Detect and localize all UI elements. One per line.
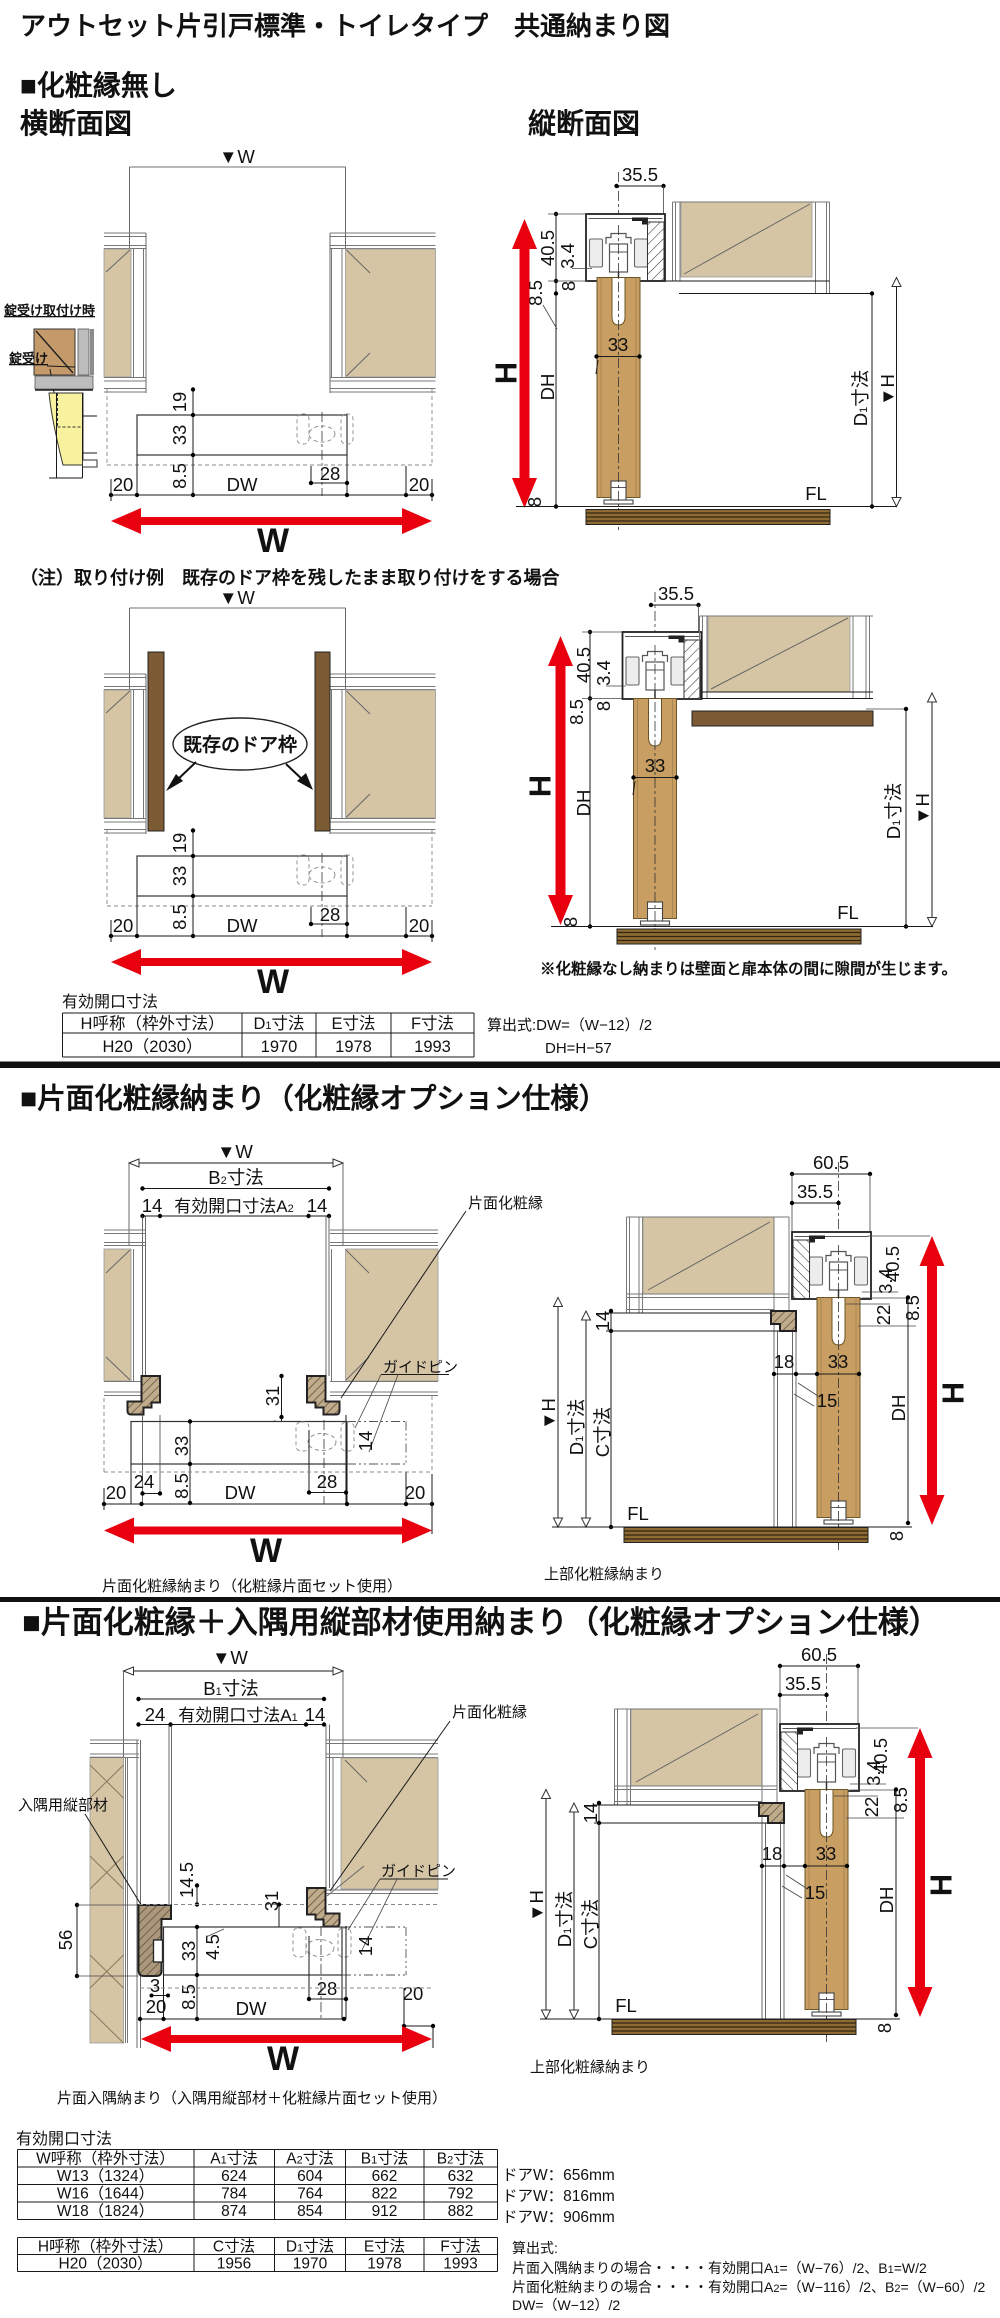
svg-text:662: 662 (372, 2168, 398, 2185)
svg-text:DH: DH (573, 790, 594, 817)
svg-text:33: 33 (608, 334, 629, 355)
svg-text:8: 8 (558, 281, 579, 291)
svg-text:縦断面図: 縦断面図 (528, 107, 640, 139)
svg-text:874: 874 (221, 2203, 247, 2220)
svg-text:▼W: ▼W (212, 1647, 248, 1668)
svg-text:ドアW：906mm: ドアW：906mm (502, 2209, 615, 2226)
svg-text:アウトセット片引戸標準・トイレタイプ 共通納まり図: アウトセット片引戸標準・トイレタイプ 共通納まり図 (20, 11, 670, 41)
svg-text:※化粧縁なし納まりは壁面と扉本体の間に隙間が生じます。: ※化粧縁なし納まりは壁面と扉本体の間に隙間が生じます。 (540, 959, 957, 978)
svg-text:19: 19 (169, 392, 190, 413)
svg-text:FL: FL (805, 483, 827, 504)
svg-text:31: 31 (261, 1891, 282, 1912)
svg-text:▼H: ▼H (877, 374, 898, 406)
svg-text:W: W (257, 522, 290, 560)
svg-text:764: 764 (297, 2186, 323, 2203)
svg-text:1970: 1970 (261, 1038, 298, 1056)
svg-text:片面入隅納まりの場合・・・・有効開口A1=（W−76）/2、: 片面入隅納まりの場合・・・・有効開口A1=（W−76）/2、B1=W/2 (512, 2260, 927, 2276)
svg-text:D1寸法: D1寸法 (253, 1014, 304, 1033)
svg-text:854: 854 (297, 2203, 323, 2220)
svg-text:31: 31 (262, 1386, 283, 1407)
svg-text:W: W (250, 1532, 283, 1570)
svg-text:C寸法: C寸法 (213, 2238, 255, 2256)
svg-text:B1寸法: B1寸法 (203, 1678, 258, 1699)
svg-text:有効開口寸法: 有効開口寸法 (16, 2130, 112, 2148)
svg-text:既存のドア枠: 既存のドア枠 (183, 733, 297, 756)
svg-text:18: 18 (774, 1351, 795, 1372)
svg-text:3.4: 3.4 (557, 243, 578, 269)
svg-text:14: 14 (355, 1936, 376, 1957)
svg-text:8: 8 (593, 701, 614, 711)
svg-text:33: 33 (178, 1941, 199, 1962)
svg-text:D1寸法: D1寸法 (566, 1399, 587, 1456)
svg-text:DH: DH (537, 374, 558, 401)
svg-text:片面化粧縁: 片面化粧縁 (452, 1704, 527, 1721)
svg-text:15: 15 (817, 1390, 838, 1411)
svg-text:W13（1324）: W13（1324） (57, 2168, 154, 2185)
svg-text:8: 8 (524, 497, 545, 507)
svg-text:FL: FL (627, 1503, 649, 1524)
svg-text:■片面化粧縁納まり（化粧縁オプション仕様）: ■片面化粧縁納まり（化粧縁オプション仕様） (20, 1082, 607, 1115)
svg-text:上部化粧縁納まり: 上部化粧縁納まり (530, 2059, 650, 2076)
svg-text:20: 20 (403, 1983, 424, 2004)
svg-text:H: H (489, 362, 524, 384)
svg-text:横断面図: 横断面図 (20, 107, 132, 139)
svg-text:1978: 1978 (367, 2256, 401, 2273)
svg-text:D1寸法: D1寸法 (850, 370, 871, 427)
svg-text:H20（2030）: H20（2030） (103, 1037, 203, 1056)
svg-text:3: 3 (150, 1975, 160, 1996)
svg-text:W: W (257, 963, 290, 1001)
svg-text:20: 20 (113, 915, 134, 936)
svg-text:35.5: 35.5 (797, 1181, 833, 1202)
svg-text:F寸法: F寸法 (440, 2238, 480, 2256)
svg-text:有効開口寸法A2: 有効開口寸法A2 (174, 1197, 293, 1216)
svg-text:1956: 1956 (217, 2256, 251, 2273)
svg-text:3.4: 3.4 (875, 1268, 896, 1294)
svg-text:882: 882 (448, 2203, 474, 2220)
svg-text:792: 792 (448, 2186, 474, 2203)
svg-text:有効開口寸法A1: 有効開口寸法A1 (178, 1706, 297, 1725)
svg-text:20: 20 (409, 915, 430, 936)
svg-text:33: 33 (645, 755, 666, 776)
svg-text:33: 33 (171, 1436, 192, 1457)
svg-text:33: 33 (828, 1351, 849, 1372)
svg-text:DW: DW (227, 474, 258, 495)
svg-text:H20（2030）: H20（2030） (59, 2256, 153, 2273)
svg-text:20: 20 (106, 1482, 127, 1503)
svg-text:56: 56 (55, 1930, 76, 1951)
svg-text:A2寸法: A2寸法 (286, 2150, 333, 2168)
svg-text:28: 28 (317, 1978, 338, 1999)
svg-text:33: 33 (169, 866, 190, 887)
svg-text:有効開口寸法: 有効開口寸法 (62, 993, 158, 1011)
svg-text:784: 784 (221, 2186, 247, 2203)
svg-text:D1寸法: D1寸法 (883, 783, 904, 840)
svg-text:40.5: 40.5 (573, 647, 594, 683)
svg-text:片面化粧納まりの場合・・・・有効開口A2=（W−116）/2: 片面化粧納まりの場合・・・・有効開口A2=（W−116）/2、B2=（W−60）… (512, 2279, 986, 2295)
svg-text:E寸法: E寸法 (364, 2238, 405, 2256)
svg-text:片面化粧縁: 片面化粧縁 (468, 1195, 543, 1212)
svg-text:14: 14 (355, 1431, 376, 1452)
svg-text:A1寸法: A1寸法 (210, 2150, 257, 2168)
svg-text:W18（1824）: W18（1824） (57, 2203, 154, 2220)
svg-text:14: 14 (592, 1311, 613, 1332)
svg-text:W呼称（枠外寸法）: W呼称（枠外寸法） (36, 2150, 175, 2168)
svg-text:8: 8 (886, 1531, 907, 1541)
svg-text:算出式:: 算出式: (512, 2240, 558, 2256)
svg-text:■片面化粧縁＋入隅用縦部材使用納まり（化粧縁オプション仕様）: ■片面化粧縁＋入隅用縦部材使用納まり（化粧縁オプション仕様） (22, 1605, 940, 1640)
svg-text:632: 632 (448, 2168, 474, 2185)
svg-text:W: W (267, 2040, 300, 2078)
svg-text:入隅用縦部材: 入隅用縦部材 (18, 1797, 108, 1814)
svg-text:624: 624 (221, 2168, 247, 2185)
svg-text:8.5: 8.5 (169, 904, 190, 930)
svg-text:35.5: 35.5 (622, 164, 658, 185)
svg-text:8.5: 8.5 (566, 699, 587, 725)
svg-text:DW: DW (225, 1482, 256, 1503)
svg-text:1993: 1993 (414, 1038, 451, 1056)
svg-text:■化粧縁無し: ■化粧縁無し (20, 70, 177, 101)
svg-text:8.5: 8.5 (902, 1295, 923, 1321)
svg-text:14.5: 14.5 (176, 1862, 197, 1898)
svg-text:ドアW：656mm: ドアW：656mm (502, 2167, 615, 2184)
svg-text:E寸法: E寸法 (331, 1014, 375, 1033)
svg-text:DH=H−57: DH=H−57 (545, 1040, 612, 1057)
svg-text:8.5: 8.5 (171, 1473, 192, 1499)
svg-text:8: 8 (560, 917, 581, 927)
svg-text:H呼称（枠外寸法）: H呼称（枠外寸法） (38, 2238, 173, 2256)
svg-text:片面入隅納まり（入隅用縦部材＋化粧縁片面セット使用）: 片面入隅納まり（入隅用縦部材＋化粧縁片面セット使用） (57, 2090, 447, 2107)
svg-text:1978: 1978 (335, 1038, 372, 1056)
svg-text:40.5: 40.5 (537, 230, 558, 266)
svg-text:1993: 1993 (443, 2256, 477, 2273)
svg-text:H: H (523, 775, 558, 797)
svg-text:W16（1644）: W16（1644） (57, 2186, 154, 2203)
svg-text:FL: FL (837, 902, 859, 923)
svg-text:H呼称（枠外寸法）: H呼称（枠外寸法） (81, 1014, 225, 1033)
svg-text:上部化粧縁納まり: 上部化粧縁納まり (544, 1566, 664, 1583)
svg-text:8.5: 8.5 (169, 463, 190, 489)
svg-text:4.5: 4.5 (202, 1934, 223, 1960)
svg-text:20: 20 (113, 474, 134, 495)
svg-text:28: 28 (320, 463, 341, 484)
svg-text:▼W: ▼W (219, 587, 255, 608)
svg-text:28: 28 (317, 1471, 338, 1492)
svg-text:錠受け取付け時: 錠受け取付け時 (4, 303, 95, 318)
svg-text:822: 822 (372, 2186, 398, 2203)
svg-text:35.5: 35.5 (658, 583, 694, 604)
svg-text:B2寸法: B2寸法 (208, 1167, 263, 1188)
svg-text:22: 22 (873, 1305, 894, 1326)
svg-text:DW=（W−12）/2: DW=（W−12）/2 (512, 2297, 620, 2313)
svg-text:1970: 1970 (293, 2256, 328, 2273)
svg-text:20: 20 (146, 1996, 167, 2017)
svg-text:▼W: ▼W (219, 146, 255, 167)
svg-text:B2寸法: B2寸法 (437, 2150, 484, 2168)
svg-text:算出式:DW=（W−12）/2: 算出式:DW=（W−12）/2 (487, 1016, 652, 1034)
svg-text:14: 14 (305, 1704, 326, 1725)
svg-text:20: 20 (405, 1482, 426, 1503)
svg-text:14: 14 (307, 1195, 328, 1216)
svg-text:14: 14 (142, 1195, 163, 1216)
svg-text:片面化粧縁納まり（化粧縁片面セット使用）: 片面化粧縁納まり（化粧縁片面セット使用） (102, 1578, 402, 1595)
svg-text:20: 20 (409, 474, 430, 495)
svg-text:33: 33 (169, 425, 190, 446)
svg-text:H: H (936, 1382, 971, 1404)
svg-text:8.5: 8.5 (178, 1984, 199, 2010)
svg-text:28: 28 (320, 904, 341, 925)
svg-text:24: 24 (134, 1471, 155, 1492)
svg-text:DW: DW (227, 915, 258, 936)
svg-text:▼H: ▼H (538, 1398, 559, 1430)
svg-text:3.4: 3.4 (593, 660, 614, 686)
svg-text:ドアW：816mm: ドアW：816mm (502, 2188, 615, 2205)
svg-text:（注）取り付け例 既存のドア枠を残したまま取り付けをする場合: （注）取り付け例 既存のドア枠を残したまま取り付けをする場合 (20, 567, 560, 588)
svg-text:24: 24 (145, 1704, 166, 1725)
svg-text:D1寸法: D1寸法 (286, 2238, 334, 2256)
svg-text:604: 604 (297, 2168, 323, 2185)
svg-text:DH: DH (888, 1395, 909, 1422)
svg-text:912: 912 (372, 2203, 398, 2220)
svg-text:B1寸法: B1寸法 (361, 2150, 408, 2168)
svg-text:▼W: ▼W (217, 1141, 253, 1162)
svg-text:ガイドピン: ガイドピン (381, 1863, 456, 1880)
svg-text:▼H: ▼H (912, 793, 933, 825)
svg-text:60.5: 60.5 (813, 1152, 849, 1173)
svg-text:錠受け: 錠受け (9, 351, 48, 366)
svg-text:ガイドピン: ガイドピン (383, 1359, 458, 1376)
svg-text:C寸法: C寸法 (592, 1407, 613, 1457)
svg-text:19: 19 (169, 833, 190, 854)
svg-text:F寸法: F寸法 (411, 1014, 454, 1033)
svg-text:DW: DW (236, 1998, 267, 2019)
